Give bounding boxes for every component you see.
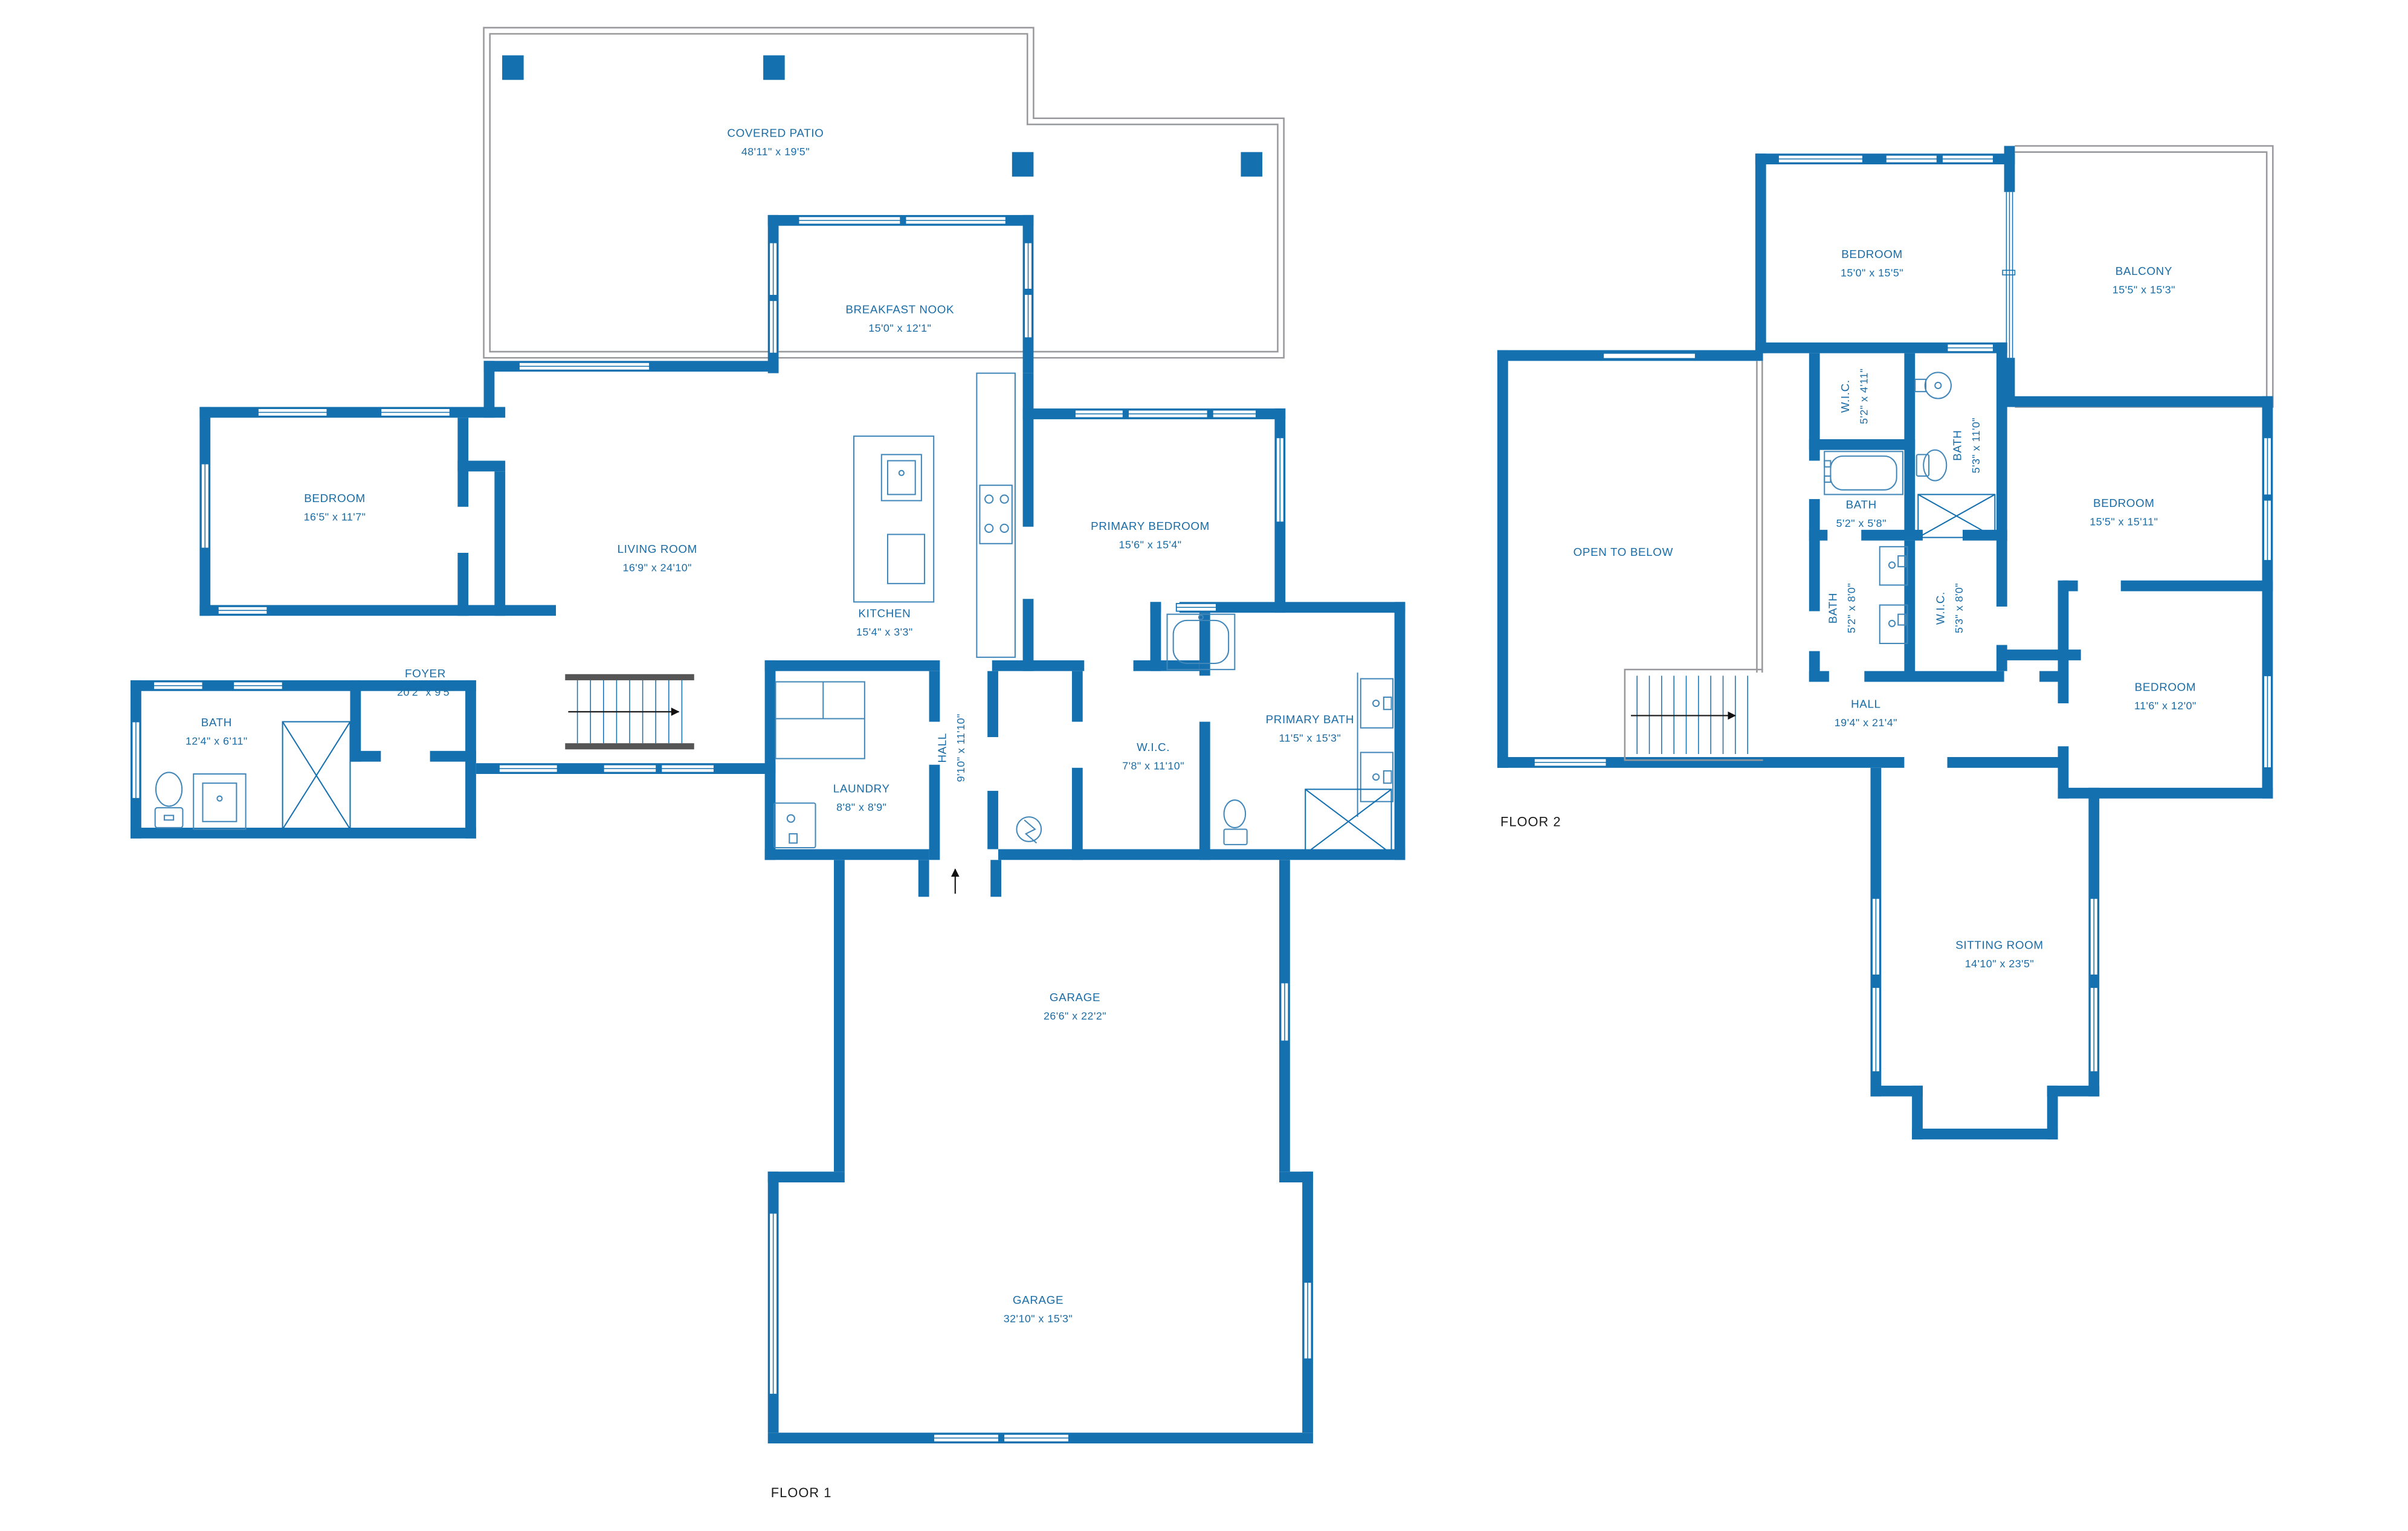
room-dims: 7'8" x 11'10" — [1122, 759, 1184, 772]
room-dims: 20'2" x 9'5" — [397, 686, 454, 698]
room-label: GARAGE — [1013, 1294, 1064, 1306]
room-dims: 15'4" x 3'3" — [856, 626, 913, 638]
stairs-floor1 — [565, 674, 694, 750]
room-dims: 15'6" x 15'4" — [1118, 538, 1181, 550]
toilet-icon — [1917, 450, 1947, 481]
patio-post — [502, 56, 524, 80]
room-label: LIVING ROOM — [618, 543, 697, 555]
round-sink-icon — [1915, 372, 1951, 398]
room-dims: 5'3" x 11'0" — [1970, 417, 1982, 473]
room-dims: 5'2" x 4'11" — [1858, 369, 1870, 424]
room-label: BEDROOM — [1841, 248, 1903, 260]
floorplan-svg: COVERED PATIO 48'11" x 19'5" BREAKFAST N… — [0, 0, 2408, 1531]
room-dims: 15'5" x 15'11" — [2090, 515, 2158, 527]
room-label: FOYER — [405, 667, 446, 680]
room-label: BALCONY — [2116, 265, 2172, 277]
sink-icon — [193, 774, 245, 829]
room-dims: 8'8" x 8'9" — [836, 801, 886, 813]
room-dims: 16'9" x 24'10" — [622, 562, 692, 574]
room-label: W.I.C. — [1839, 379, 1851, 413]
room-label: PRIMARY BATH — [1266, 713, 1355, 726]
room-dims: 15'5" x 15'3" — [2113, 284, 2175, 296]
floor2-title: FLOOR 2 — [1500, 814, 1561, 829]
room-label: LAUNDRY — [833, 782, 890, 795]
stairs-floor2 — [1625, 669, 1763, 760]
shower-icon — [1918, 494, 1995, 537]
room-label: OPEN TO BELOW — [1574, 546, 1673, 558]
patio-post — [1012, 152, 1034, 177]
vanity-sinks — [1358, 672, 1393, 817]
room-dims: 48'11" x 19'5" — [741, 146, 810, 158]
room-dims: 32'10" x 15'3" — [1004, 1312, 1073, 1324]
floorplan-canvas: COVERED PATIO 48'11" x 19'5" BREAKFAST N… — [0, 0, 2408, 1531]
room-label: BEDROOM — [304, 492, 366, 504]
room-dims: 11'5" x 15'3" — [1279, 732, 1341, 744]
toilet-icon — [1224, 800, 1247, 845]
shower-icon — [1305, 789, 1391, 854]
floor2-plan: BEDROOM 15'0" x 15'5" BALCONY 15'5" x 15… — [1497, 146, 2273, 1139]
room-dims: 16'5" x 11'7" — [304, 511, 366, 523]
room-dims: 5'2" x 5'8" — [1836, 517, 1887, 529]
room-label: PRIMARY BEDROOM — [1091, 520, 1210, 532]
room-label: W.I.C. — [1934, 591, 1946, 625]
kitchen-island — [854, 436, 934, 602]
room-dims: 9'10" x 11'10" — [955, 714, 967, 782]
kitchen-counter-stove — [976, 373, 1015, 657]
room-dims: 5'3" x 8'0" — [1953, 583, 1965, 633]
room-dims: 19'4" x 21'4" — [1835, 717, 1897, 729]
room-dims: 5'2" x 8'0" — [1845, 583, 1858, 633]
floor1-plan: COVERED PATIO 48'11" x 19'5" BREAKFAST N… — [131, 28, 1405, 1500]
open-to-below-railing — [1757, 361, 1762, 672]
room-label: BATH — [1827, 593, 1839, 624]
room-dims: 14'10" x 23'5" — [1965, 958, 2035, 970]
room-label: KITCHEN — [858, 607, 911, 620]
room-label: HALL — [936, 733, 949, 763]
room-label: BATH — [1846, 498, 1877, 511]
room-label: GARAGE — [1050, 991, 1100, 1004]
water-heater-icon — [1016, 817, 1041, 843]
patio-post — [763, 56, 785, 80]
floor1-title: FLOOR 1 — [771, 1485, 832, 1500]
toilet-icon — [155, 772, 183, 827]
room-label: W.I.C. — [1137, 741, 1170, 753]
sliding-door — [2003, 192, 2015, 358]
bathtub-icon — [1824, 451, 1903, 494]
room-label: SITTING ROOM — [1955, 939, 2043, 952]
room-dims: 15'0" x 12'1" — [868, 322, 931, 334]
vanity-sinks — [1880, 547, 1908, 643]
room-dims: 15'0" x 15'5" — [1841, 267, 1903, 279]
room-label: BEDROOM — [2135, 681, 2197, 694]
room-label: BATH — [201, 716, 232, 729]
room-dims: 11'6" x 12'0" — [2134, 700, 2197, 712]
laundry-counter — [775, 682, 864, 758]
shower-icon — [283, 722, 350, 830]
room-label: BEDROOM — [2093, 497, 2155, 509]
room-label: BATH — [1951, 430, 1963, 460]
room-label: HALL — [1851, 698, 1881, 711]
washer-icon — [774, 803, 816, 848]
room-label: BREAKFAST NOOK — [845, 303, 954, 316]
room-label: COVERED PATIO — [727, 126, 824, 139]
patio-post — [1241, 152, 1262, 177]
room-dims: 12'4" x 6'11" — [186, 735, 248, 747]
room-dims: 26'6" x 22'2" — [1044, 1010, 1106, 1022]
